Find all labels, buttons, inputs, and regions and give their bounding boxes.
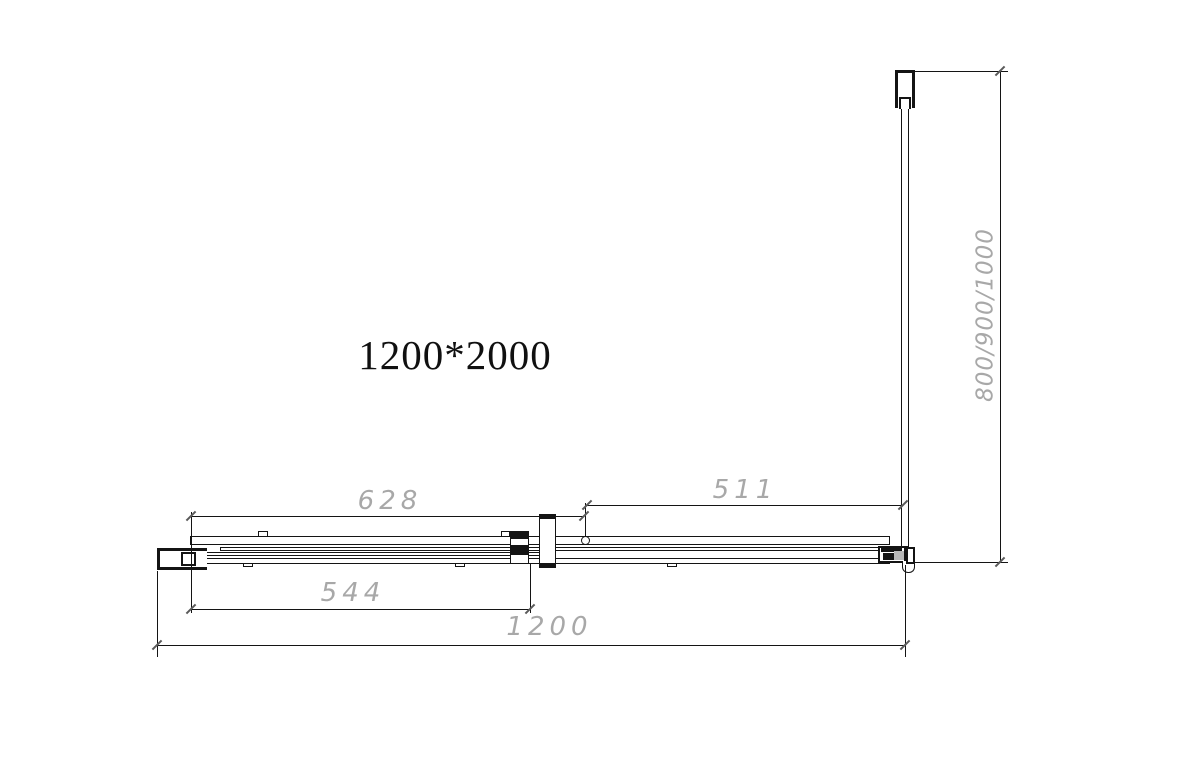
dimension-line-628 xyxy=(191,516,584,517)
sliding-door-glass xyxy=(196,552,553,556)
shower-enclosure-technical-drawing: 1200*2000 xyxy=(0,0,1195,783)
door-handle xyxy=(539,514,556,568)
dim-label-544: 544 xyxy=(288,580,418,606)
door-handle-cap xyxy=(539,563,556,568)
extension-line xyxy=(914,71,1008,72)
dim-label-depth: 800/900/1000 xyxy=(975,228,998,402)
size-label: 1200*2000 xyxy=(340,331,570,379)
dim-label-511: 511 xyxy=(680,477,810,503)
dim-label-628: 628 xyxy=(325,488,455,514)
overlap-marker-circle xyxy=(581,536,590,545)
corner-connector-block xyxy=(883,553,894,560)
top-profile-clamp xyxy=(899,97,911,109)
dimension-line-1200 xyxy=(157,645,905,646)
side-panel-glass xyxy=(901,106,909,547)
extension-line xyxy=(191,512,192,613)
corner-connector-shade xyxy=(894,551,904,560)
dim-label-1200: 1200 xyxy=(472,614,627,640)
dimension-line-depth xyxy=(1000,71,1001,562)
left-profile-clamp xyxy=(181,552,196,566)
dimension-line-544 xyxy=(191,609,530,610)
dimension-line-511 xyxy=(587,505,903,506)
extension-line xyxy=(914,562,1008,563)
roller-block-band xyxy=(510,545,529,555)
roller-block-band xyxy=(510,531,529,539)
